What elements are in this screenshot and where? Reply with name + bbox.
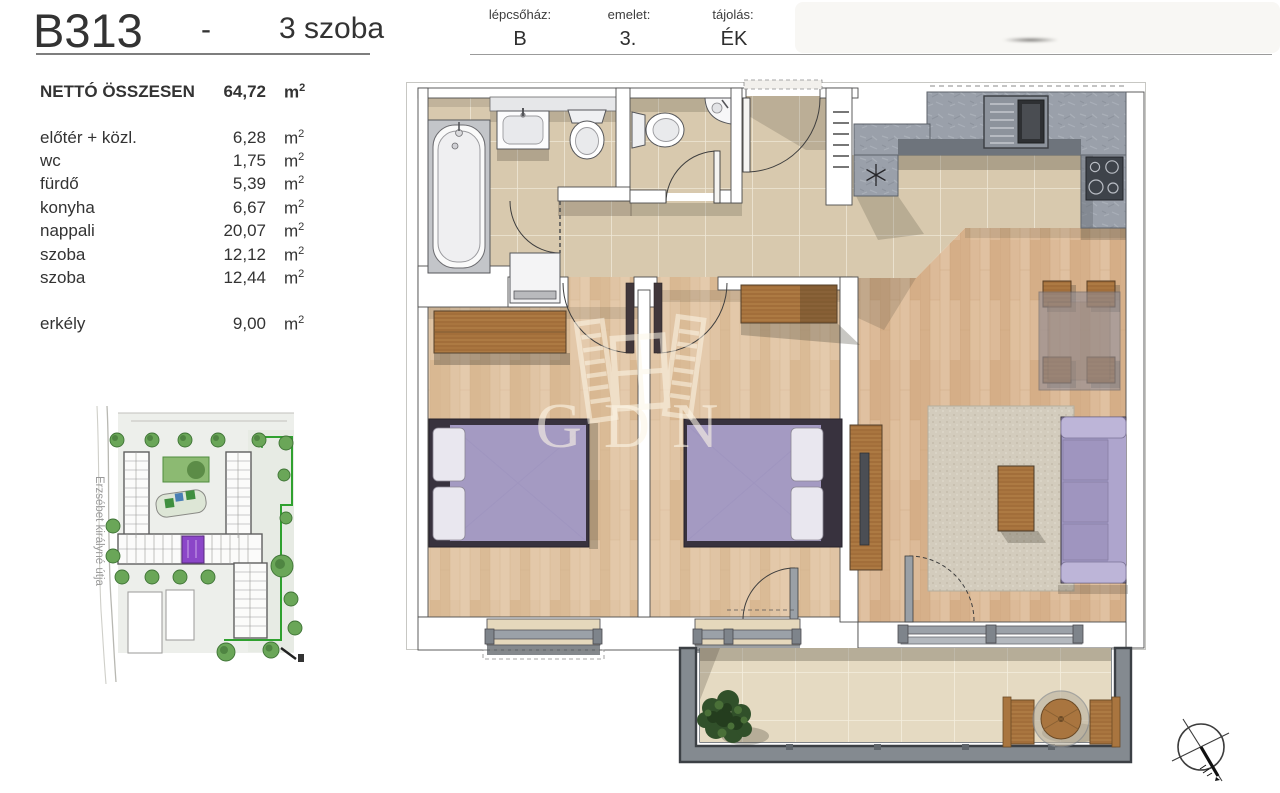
svg-text:GDN: GDN [536, 390, 741, 461]
svg-text:Erzsébet királyné útja: Erzsébet királyné útja [93, 476, 105, 587]
